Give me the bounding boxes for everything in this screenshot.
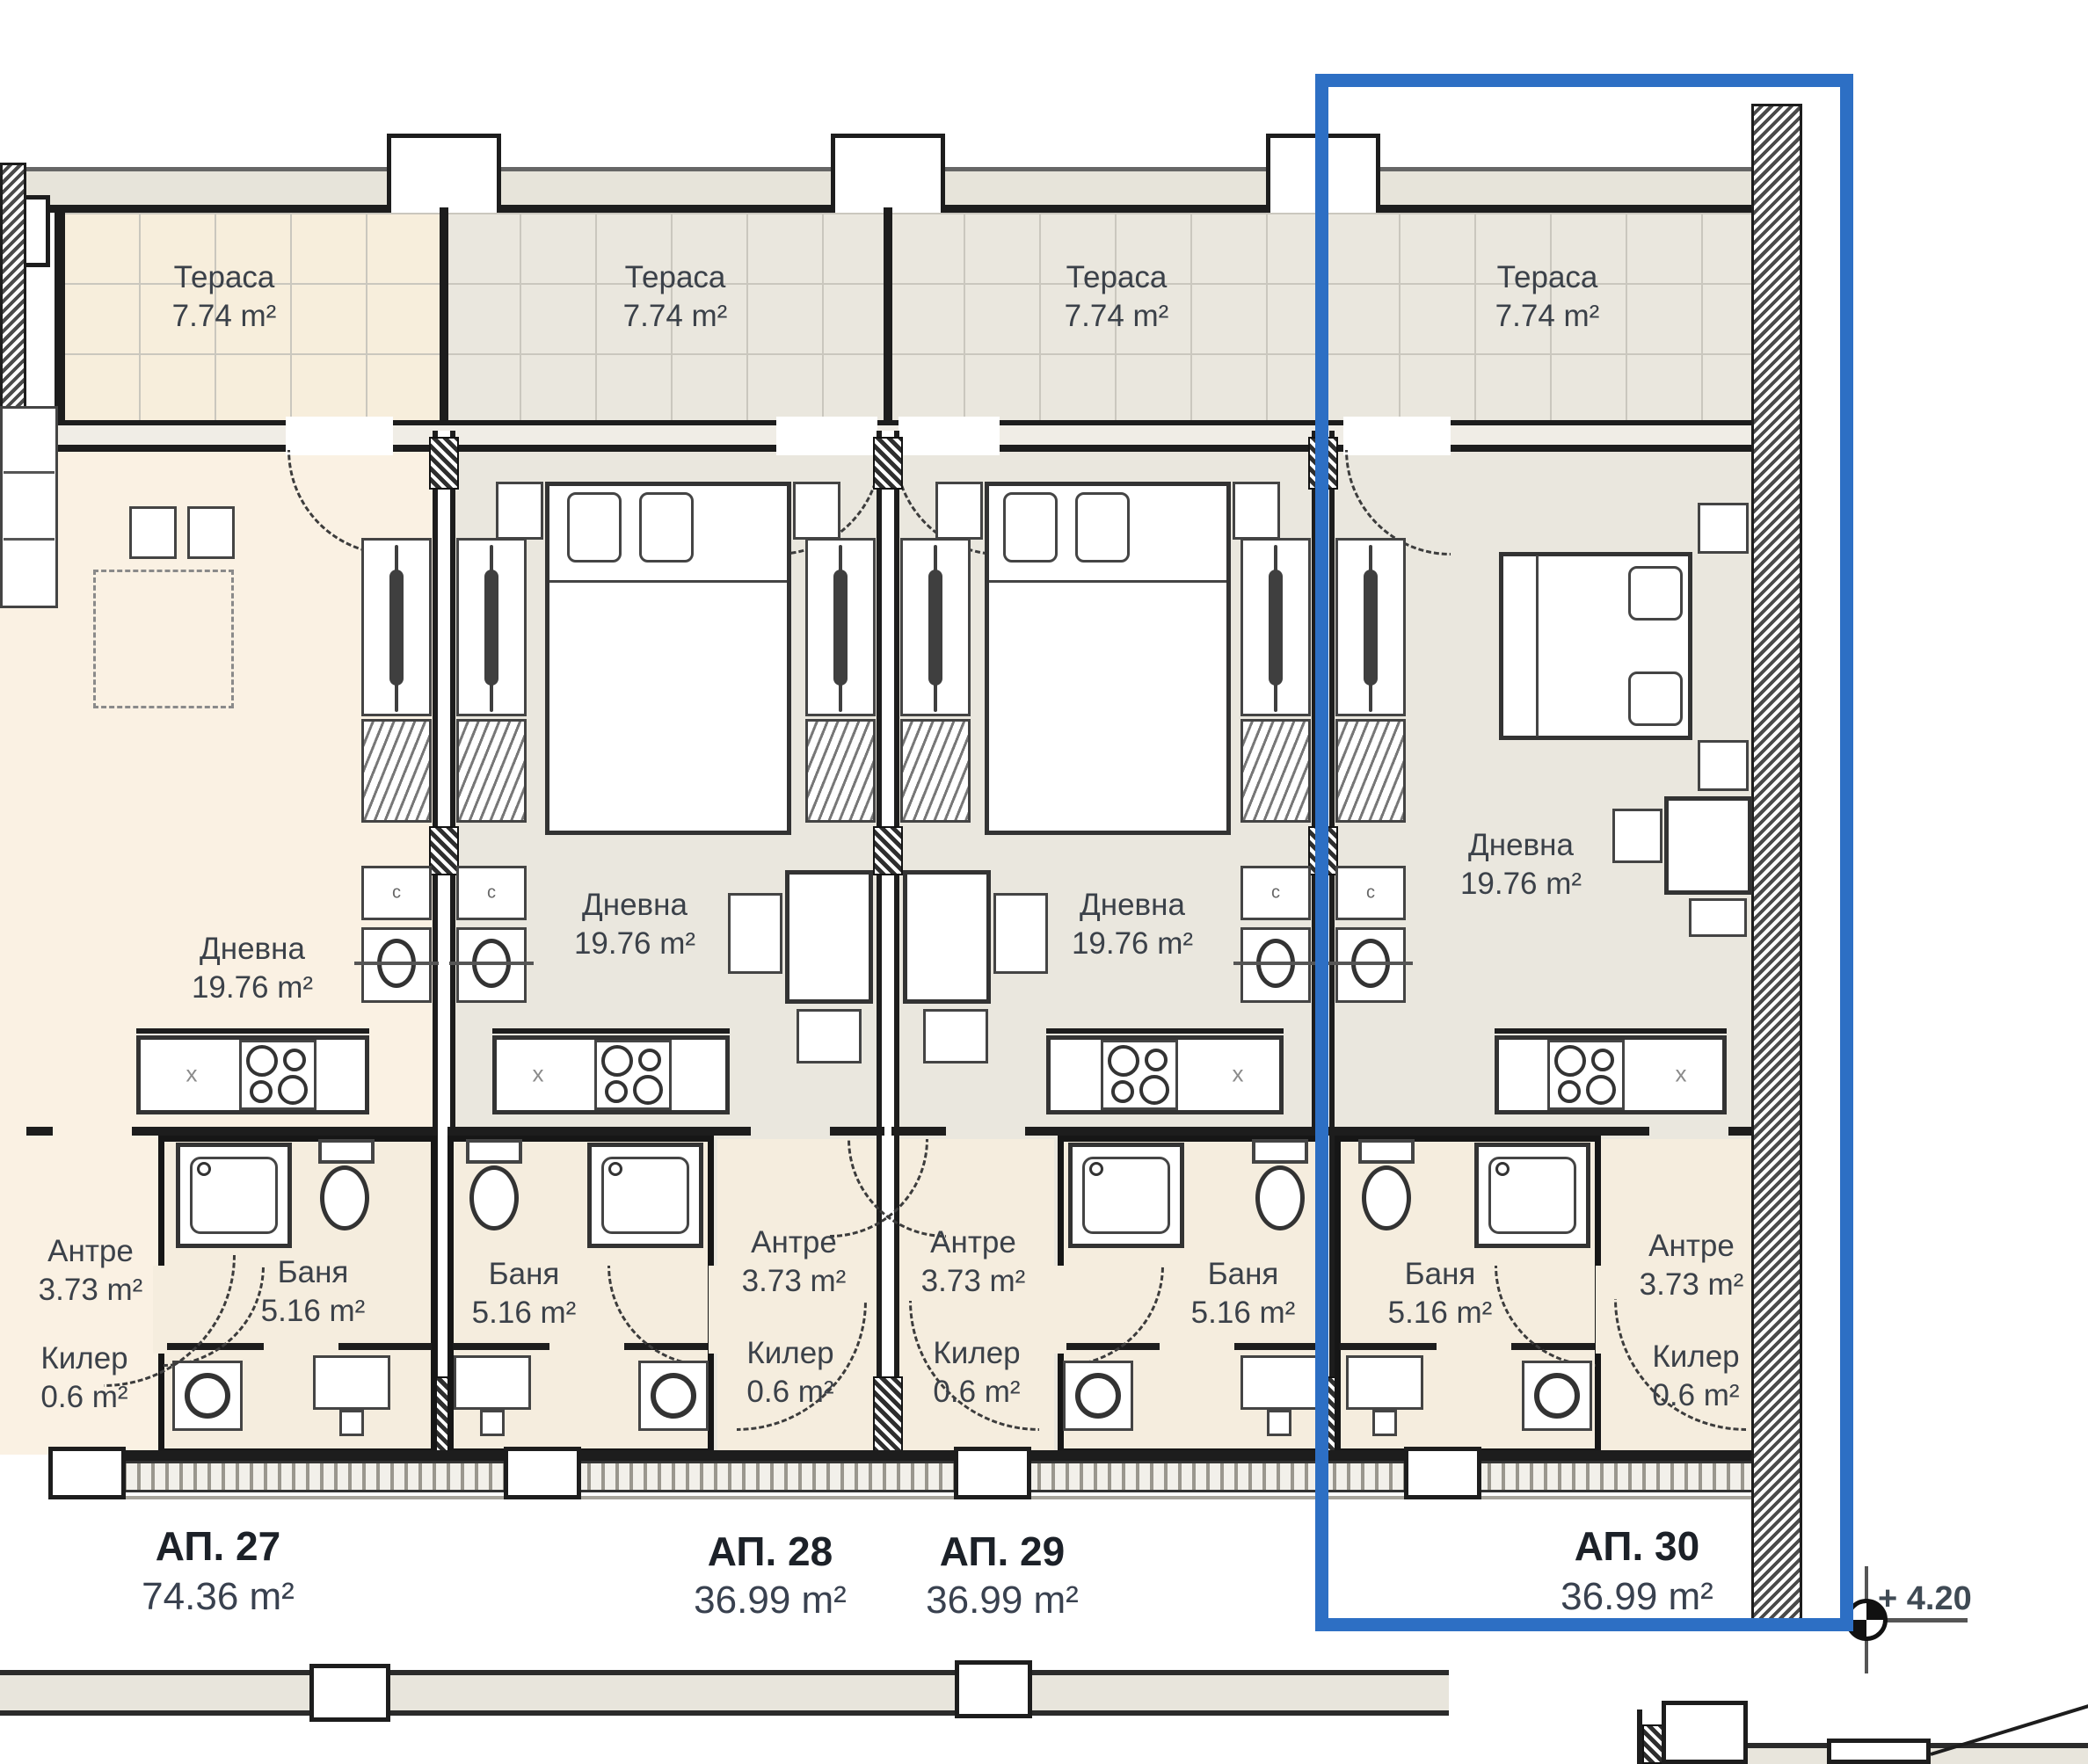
closet-27-name: Килер [40, 1341, 127, 1376]
wall [1046, 1028, 1284, 1034]
toilet-tank [318, 1139, 375, 1164]
terrace-2-name: Тераса [625, 260, 726, 294]
apartment-28-label: АП. 28 [708, 1528, 833, 1575]
wall [440, 207, 448, 427]
shelf-unit [900, 719, 971, 823]
basin-line [1233, 962, 1318, 965]
wardrobe-handle [928, 570, 942, 686]
column [504, 1447, 581, 1499]
closet-29-label: Килер 0.6 m² [933, 1334, 1020, 1412]
burner [1145, 1049, 1168, 1071]
wall [338, 1343, 432, 1350]
closet-27-label: Килер 0.6 m² [40, 1339, 127, 1417]
burner [283, 1049, 306, 1071]
apartment-29-total-area: 36.99 m² [926, 1579, 1079, 1622]
apartment-28-total-area: 36.99 m² [694, 1579, 847, 1622]
pillow [1075, 492, 1130, 563]
terrace-3-label: Тераса 7.74 m² [1065, 258, 1169, 336]
hatch-block [429, 437, 459, 490]
living-28-label: Дневна 19.76 m² [574, 886, 695, 963]
wardrobe-handle [833, 570, 848, 686]
shelf-unit [805, 719, 876, 823]
entry-28-area: 3.73 m² [742, 1264, 847, 1298]
sink-unit [454, 1355, 531, 1410]
living-27-area: 19.76 m² [192, 970, 313, 1005]
pillow [567, 492, 622, 563]
burner [638, 1049, 661, 1071]
wall [1234, 1343, 1319, 1350]
sofa [0, 406, 58, 608]
column [309, 1664, 390, 1722]
column [955, 1660, 1032, 1718]
blanket-line [549, 580, 787, 583]
wall [1025, 1127, 1320, 1136]
column [1662, 1701, 1748, 1764]
hatch-block [873, 826, 903, 875]
wall [492, 1028, 730, 1034]
burner [1111, 1080, 1134, 1103]
dining-table [785, 870, 873, 1004]
shelf-unit [1240, 719, 1311, 823]
washing-machine-drum [1075, 1373, 1121, 1419]
closet-29-area: 0.6 m² [933, 1375, 1020, 1409]
terrace-3-name: Тераса [1066, 260, 1168, 294]
bath-28-name: Баня [489, 1257, 560, 1291]
terrace-1-name: Тераса [174, 260, 275, 294]
nightstand [496, 482, 543, 540]
hatch-block [429, 826, 459, 875]
terrace-3-area: 7.74 m² [1065, 299, 1169, 333]
living-28-name: Дневна [582, 888, 688, 922]
drain [197, 1162, 211, 1176]
hatch-block [873, 437, 903, 490]
sink-mark: x [186, 1061, 198, 1088]
sink-unit [313, 1355, 390, 1410]
living-28-area: 19.76 m² [574, 926, 695, 961]
shelf-unit [456, 719, 527, 823]
bath-29-area: 5.16 m² [1191, 1296, 1296, 1330]
cabinet-mark: c [1271, 883, 1280, 904]
living-29-area: 19.76 m² [1072, 926, 1193, 961]
sink-pedestal [339, 1410, 364, 1436]
blanket-line [989, 580, 1226, 583]
closet-28-area: 0.6 m² [746, 1375, 833, 1409]
bath-29-name: Баня [1208, 1257, 1279, 1291]
toilet-bowl [320, 1165, 369, 1230]
bath-27-name: Баня [278, 1255, 349, 1289]
apartment-29-label: АП. 29 [940, 1528, 1065, 1575]
closet-28-name: Килер [746, 1336, 833, 1370]
party-wall [877, 431, 899, 1455]
toilet-tank [466, 1139, 522, 1164]
armchair [129, 506, 177, 559]
washing-machine-drum [185, 1373, 230, 1419]
pillow [639, 492, 694, 563]
wall [830, 1127, 884, 1136]
nightstand [935, 482, 983, 540]
wall [26, 1127, 53, 1136]
terrace-1-area: 7.74 m² [172, 299, 277, 333]
apartment-27-label: АП. 27 [156, 1522, 280, 1570]
pillow [1003, 492, 1058, 563]
sink-pedestal [480, 1410, 505, 1436]
burner [250, 1080, 273, 1103]
bath-28-label: Баня 5.16 m² [472, 1255, 577, 1332]
drain [1089, 1162, 1103, 1176]
living-27-label: Дневна 19.76 m² [192, 930, 313, 1007]
chair [728, 893, 782, 974]
lower-slab [0, 1670, 1449, 1716]
entry-27-name: Антре [47, 1234, 134, 1268]
nightstand [793, 482, 840, 540]
apartment-30-highlight-outline [1315, 74, 1853, 1631]
entry-29-name: Антре [930, 1225, 1016, 1259]
sink-mark: x [1233, 1061, 1244, 1088]
column [1827, 1739, 1931, 1764]
closet-28-label: Килер 0.6 m² [746, 1334, 833, 1412]
chair [797, 1009, 862, 1063]
entry-29-label: Антре 3.73 m² [921, 1223, 1026, 1301]
wardrobe-handle [389, 570, 404, 686]
burner [278, 1075, 308, 1105]
door-opening [898, 417, 1000, 455]
closet-27-area: 0.6 m² [40, 1380, 127, 1414]
terrace-2-area: 7.74 m² [623, 299, 728, 333]
cabinet-mark: c [487, 883, 496, 904]
burner [1108, 1045, 1139, 1077]
living-29-name: Дневна [1080, 888, 1185, 922]
toilet-bowl [469, 1165, 519, 1230]
burner [601, 1045, 633, 1077]
toilet-tank [1252, 1139, 1308, 1164]
terrace-1-label: Тераса 7.74 m² [172, 258, 277, 336]
bath-27-label: Баня 5.16 m² [261, 1253, 366, 1331]
sink-pedestal [1267, 1410, 1291, 1436]
hatch-wall [0, 163, 26, 422]
nightstand [1233, 482, 1280, 540]
burner [1139, 1075, 1169, 1105]
bath-27-area: 5.16 m² [261, 1294, 366, 1328]
burner [246, 1045, 278, 1077]
dining-table [903, 870, 991, 1004]
bath-28-area: 5.16 m² [472, 1296, 577, 1330]
entry-28-name: Антре [751, 1225, 837, 1259]
living-29-label: Дневна 19.76 m² [1072, 886, 1193, 963]
burner [605, 1080, 628, 1103]
entry-27-area: 3.73 m² [39, 1273, 143, 1307]
sofa-cushion-line [4, 538, 55, 541]
shelf-unit [361, 719, 432, 823]
wardrobe-handle [1269, 570, 1283, 686]
basin-line [449, 962, 534, 965]
toilet-bowl [1255, 1165, 1305, 1230]
dashed-table-outline [93, 570, 234, 708]
drain [608, 1162, 622, 1176]
living-27-name: Дневна [200, 932, 305, 966]
chair [923, 1009, 988, 1063]
wall [447, 1127, 751, 1136]
bath-29-label: Баня 5.16 m² [1191, 1255, 1296, 1332]
terrace-2-label: Тераса 7.74 m² [623, 258, 728, 336]
washing-machine-drum [651, 1373, 696, 1419]
entry-29-area: 3.73 m² [921, 1264, 1026, 1298]
column [954, 1447, 1031, 1499]
entry-27-label: Антре 3.73 m² [39, 1232, 143, 1310]
door-opening [286, 417, 393, 455]
sofa-cushion-line [4, 471, 55, 474]
entry-28-label: Антре 3.73 m² [742, 1223, 847, 1301]
closet-29-name: Килер [933, 1336, 1020, 1370]
wardrobe-handle [484, 570, 498, 686]
wall [136, 1028, 369, 1034]
floor-plan: c c c c x x [0, 0, 2088, 1764]
elevation-label: + 4.20 [1878, 1580, 1972, 1618]
sink-mark: x [533, 1061, 544, 1088]
chair [993, 893, 1048, 974]
door-opening [709, 1266, 723, 1354]
burner [633, 1075, 663, 1105]
door-opening [776, 417, 877, 455]
cabinet-mark: c [392, 883, 401, 904]
armchair [187, 506, 235, 559]
wall [884, 207, 892, 427]
column [48, 1447, 126, 1499]
apartment-27-total-area: 74.36 m² [142, 1575, 295, 1619]
wall [891, 1127, 946, 1136]
sink-unit [1240, 1355, 1318, 1410]
wall [55, 207, 65, 427]
wall [453, 1343, 549, 1350]
wall [132, 1127, 437, 1136]
basin-line [354, 962, 439, 965]
